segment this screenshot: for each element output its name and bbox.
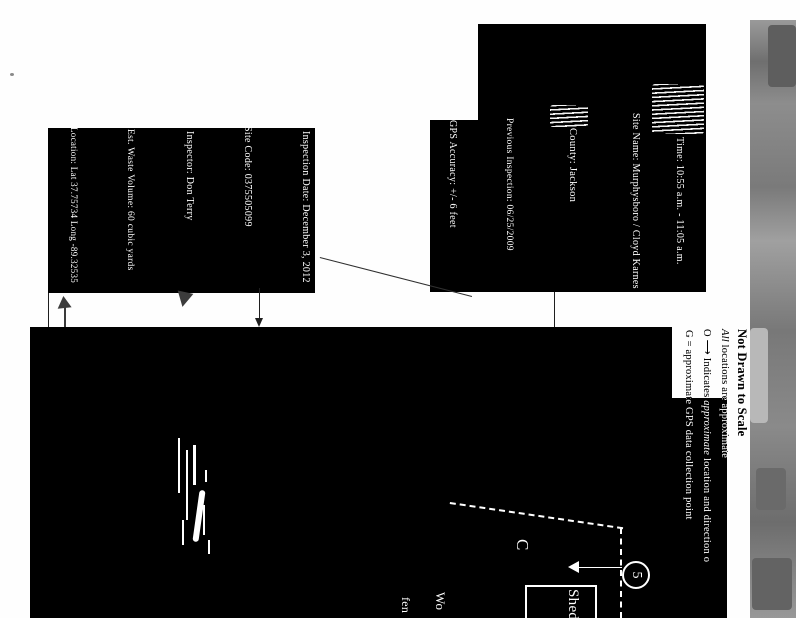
photo-point-circle: 5 bbox=[622, 561, 650, 589]
legend-locations-note-italic: All bbox=[719, 329, 730, 342]
photo-direction-arrow-shaft bbox=[577, 567, 622, 568]
info-line-time: Time: 10:55 a.m. - 11:05 a.m. bbox=[674, 137, 684, 265]
info-line-county: County: Jackson bbox=[567, 128, 578, 202]
redaction-scribble-top bbox=[652, 84, 704, 134]
connector-arrowhead-down-icon bbox=[255, 318, 263, 327]
legend-photo-note-rest: location and direction o bbox=[701, 455, 712, 562]
legend-arrow-icon: ⟶ bbox=[701, 340, 712, 355]
legend-photo-symbol-note: O ⟶ Indicates approximate location and d… bbox=[701, 329, 712, 562]
map-mark bbox=[182, 520, 184, 545]
legend-photo-symbol: O bbox=[701, 329, 712, 340]
connector-line-left bbox=[48, 293, 49, 327]
map-mark bbox=[178, 438, 180, 493]
map-mark bbox=[203, 505, 205, 535]
scan-noise-dot bbox=[10, 73, 14, 76]
arrow-up-shaft bbox=[64, 306, 66, 328]
legend-title: Not Drawn to Scale bbox=[736, 329, 749, 436]
legend-photo-note-mid: Indicates bbox=[701, 355, 712, 400]
legend-gps-note: G = approximate GPS data collection poin… bbox=[683, 330, 694, 520]
map-mark bbox=[193, 445, 196, 485]
scan-strip-dark-blob bbox=[768, 25, 796, 87]
info-line-site-code: Site Code: 0375505099 bbox=[242, 126, 252, 227]
scanned-inspection-sketch: Inspection Date: December 3, 2012 Site C… bbox=[0, 0, 800, 618]
legend-photo-note-italic: approximate bbox=[701, 400, 712, 455]
scan-strip-light-notch bbox=[750, 328, 768, 423]
connector-line-right bbox=[554, 292, 555, 327]
site-map-area bbox=[30, 327, 672, 618]
redaction-scribble-county bbox=[550, 105, 588, 127]
shed-outline bbox=[525, 585, 597, 618]
info-line-previous-inspection: Previous Inspection: 06/25/2009 bbox=[504, 118, 514, 251]
shed-label: Shed bbox=[565, 589, 580, 618]
arrow-down-icon bbox=[175, 291, 194, 309]
scan-edge-strip bbox=[750, 20, 796, 618]
wood-fence-label-part2: fen bbox=[400, 597, 412, 613]
info-line-inspection-date: Inspection Date: December 3, 2012 bbox=[300, 131, 310, 283]
scan-strip-bottom-blob bbox=[752, 558, 792, 610]
info-box-primary bbox=[48, 128, 315, 293]
arrow-up-icon bbox=[56, 295, 71, 308]
map-mark bbox=[186, 450, 188, 520]
info-line-location: Location: Lat 37.75734 Long -89.32535 bbox=[69, 127, 78, 283]
photo-point-number: 5 bbox=[628, 572, 644, 579]
legend-locations-note-rest: locations are approximate bbox=[719, 342, 730, 458]
scan-strip-blob bbox=[756, 468, 786, 510]
structure-c-label: C bbox=[514, 539, 531, 551]
legend-locations-note: All locations are approximate bbox=[719, 329, 730, 458]
map-mark bbox=[205, 470, 207, 482]
info-line-inspector: Inspector: Don Terry bbox=[184, 131, 194, 221]
info-line-waste-volume: Est. Waste Volume: 60 cubic yards bbox=[125, 129, 135, 271]
map-mark bbox=[208, 540, 210, 554]
wood-fence-label-part1: Wo bbox=[434, 592, 447, 610]
photo-direction-arrowhead-icon bbox=[568, 561, 579, 573]
info-line-site-name: Site Name: Murphysboro / Cloyd Karnes bbox=[630, 113, 640, 289]
info-line-gps-accuracy: GPS Accuracy: +/- 6 feet bbox=[447, 120, 457, 228]
connector-line-center bbox=[259, 288, 260, 322]
